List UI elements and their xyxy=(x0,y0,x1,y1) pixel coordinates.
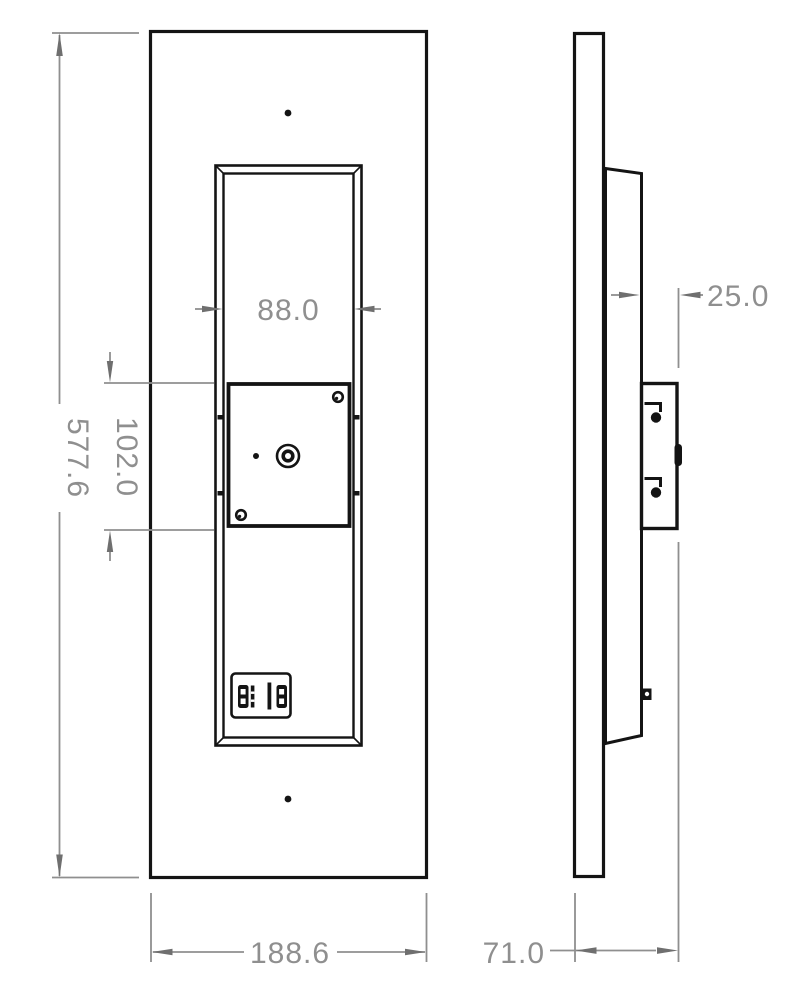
arrow-left-icon xyxy=(152,949,173,956)
snap-clip-icon xyxy=(643,689,652,701)
dim-label-bracket-depth: 25.0 xyxy=(707,280,769,313)
sidewall-tick xyxy=(218,491,224,496)
dimensions: 577.6 102.0 88.0 25.0 xyxy=(52,33,769,970)
keyhole-hook-top-icon xyxy=(645,404,662,423)
screw-hole-bottom-icon xyxy=(285,796,292,803)
bracket-bump-icon xyxy=(675,444,683,466)
module-screw-dot xyxy=(238,515,241,518)
usb-port-left-icon xyxy=(238,685,254,708)
connector-panel xyxy=(232,674,291,718)
arrow-left-icon xyxy=(354,306,375,312)
front-view xyxy=(151,32,427,878)
technical-drawing: 577.6 102.0 88.0 25.0 xyxy=(0,0,793,1000)
camera-module xyxy=(229,384,350,526)
sidewall-tick xyxy=(354,491,360,496)
sidewall-tick xyxy=(218,415,224,420)
dim-label-overall-height: 577.6 xyxy=(61,418,94,498)
led-dot-icon xyxy=(253,453,259,459)
dim-label-overall-depth: 71.0 xyxy=(483,937,545,970)
screw-hole-top-icon xyxy=(285,110,292,117)
dim-bracket-depth: 25.0 xyxy=(611,280,769,368)
arrow-left-icon xyxy=(680,292,701,298)
arrow-right-icon xyxy=(202,306,223,312)
side-view xyxy=(575,34,683,877)
module-screw-icon xyxy=(333,392,343,402)
dim-module-height: 102.0 xyxy=(104,352,214,561)
dim-label-module-height: 102.0 xyxy=(110,417,143,497)
rear-housing-outline xyxy=(606,169,642,744)
dim-label-overall-width: 188.6 xyxy=(250,937,330,970)
keyhole-hook-bottom-icon xyxy=(645,479,662,498)
arrow-down-icon xyxy=(56,855,63,878)
usb-port-right-icon xyxy=(268,683,288,710)
arrow-left-icon xyxy=(576,947,597,954)
arrow-right-icon xyxy=(619,292,640,298)
module-screw-dot xyxy=(335,397,338,400)
dim-overall-width: 188.6 xyxy=(151,893,427,970)
dim-label-inner-width: 88.0 xyxy=(257,294,319,327)
side-panel-outline xyxy=(575,34,604,877)
sidewall-tick xyxy=(354,415,360,420)
drawing-canvas: 577.6 102.0 88.0 25.0 xyxy=(0,0,793,1000)
arrow-down-icon xyxy=(107,361,113,383)
arrow-up-icon xyxy=(107,531,113,553)
bezel-chamfer xyxy=(216,737,224,745)
dim-overall-depth: 71.0 xyxy=(483,542,679,970)
arrow-up-icon xyxy=(56,33,63,56)
bezel-chamfer xyxy=(216,166,224,174)
mounting-bracket xyxy=(642,384,683,529)
bezel-chamfer xyxy=(353,166,361,174)
arrow-right-icon xyxy=(405,949,426,956)
module-screw-icon xyxy=(236,510,246,520)
bezel-chamfer xyxy=(353,737,361,745)
arrow-right-icon xyxy=(657,947,678,954)
lens-center xyxy=(285,453,291,459)
